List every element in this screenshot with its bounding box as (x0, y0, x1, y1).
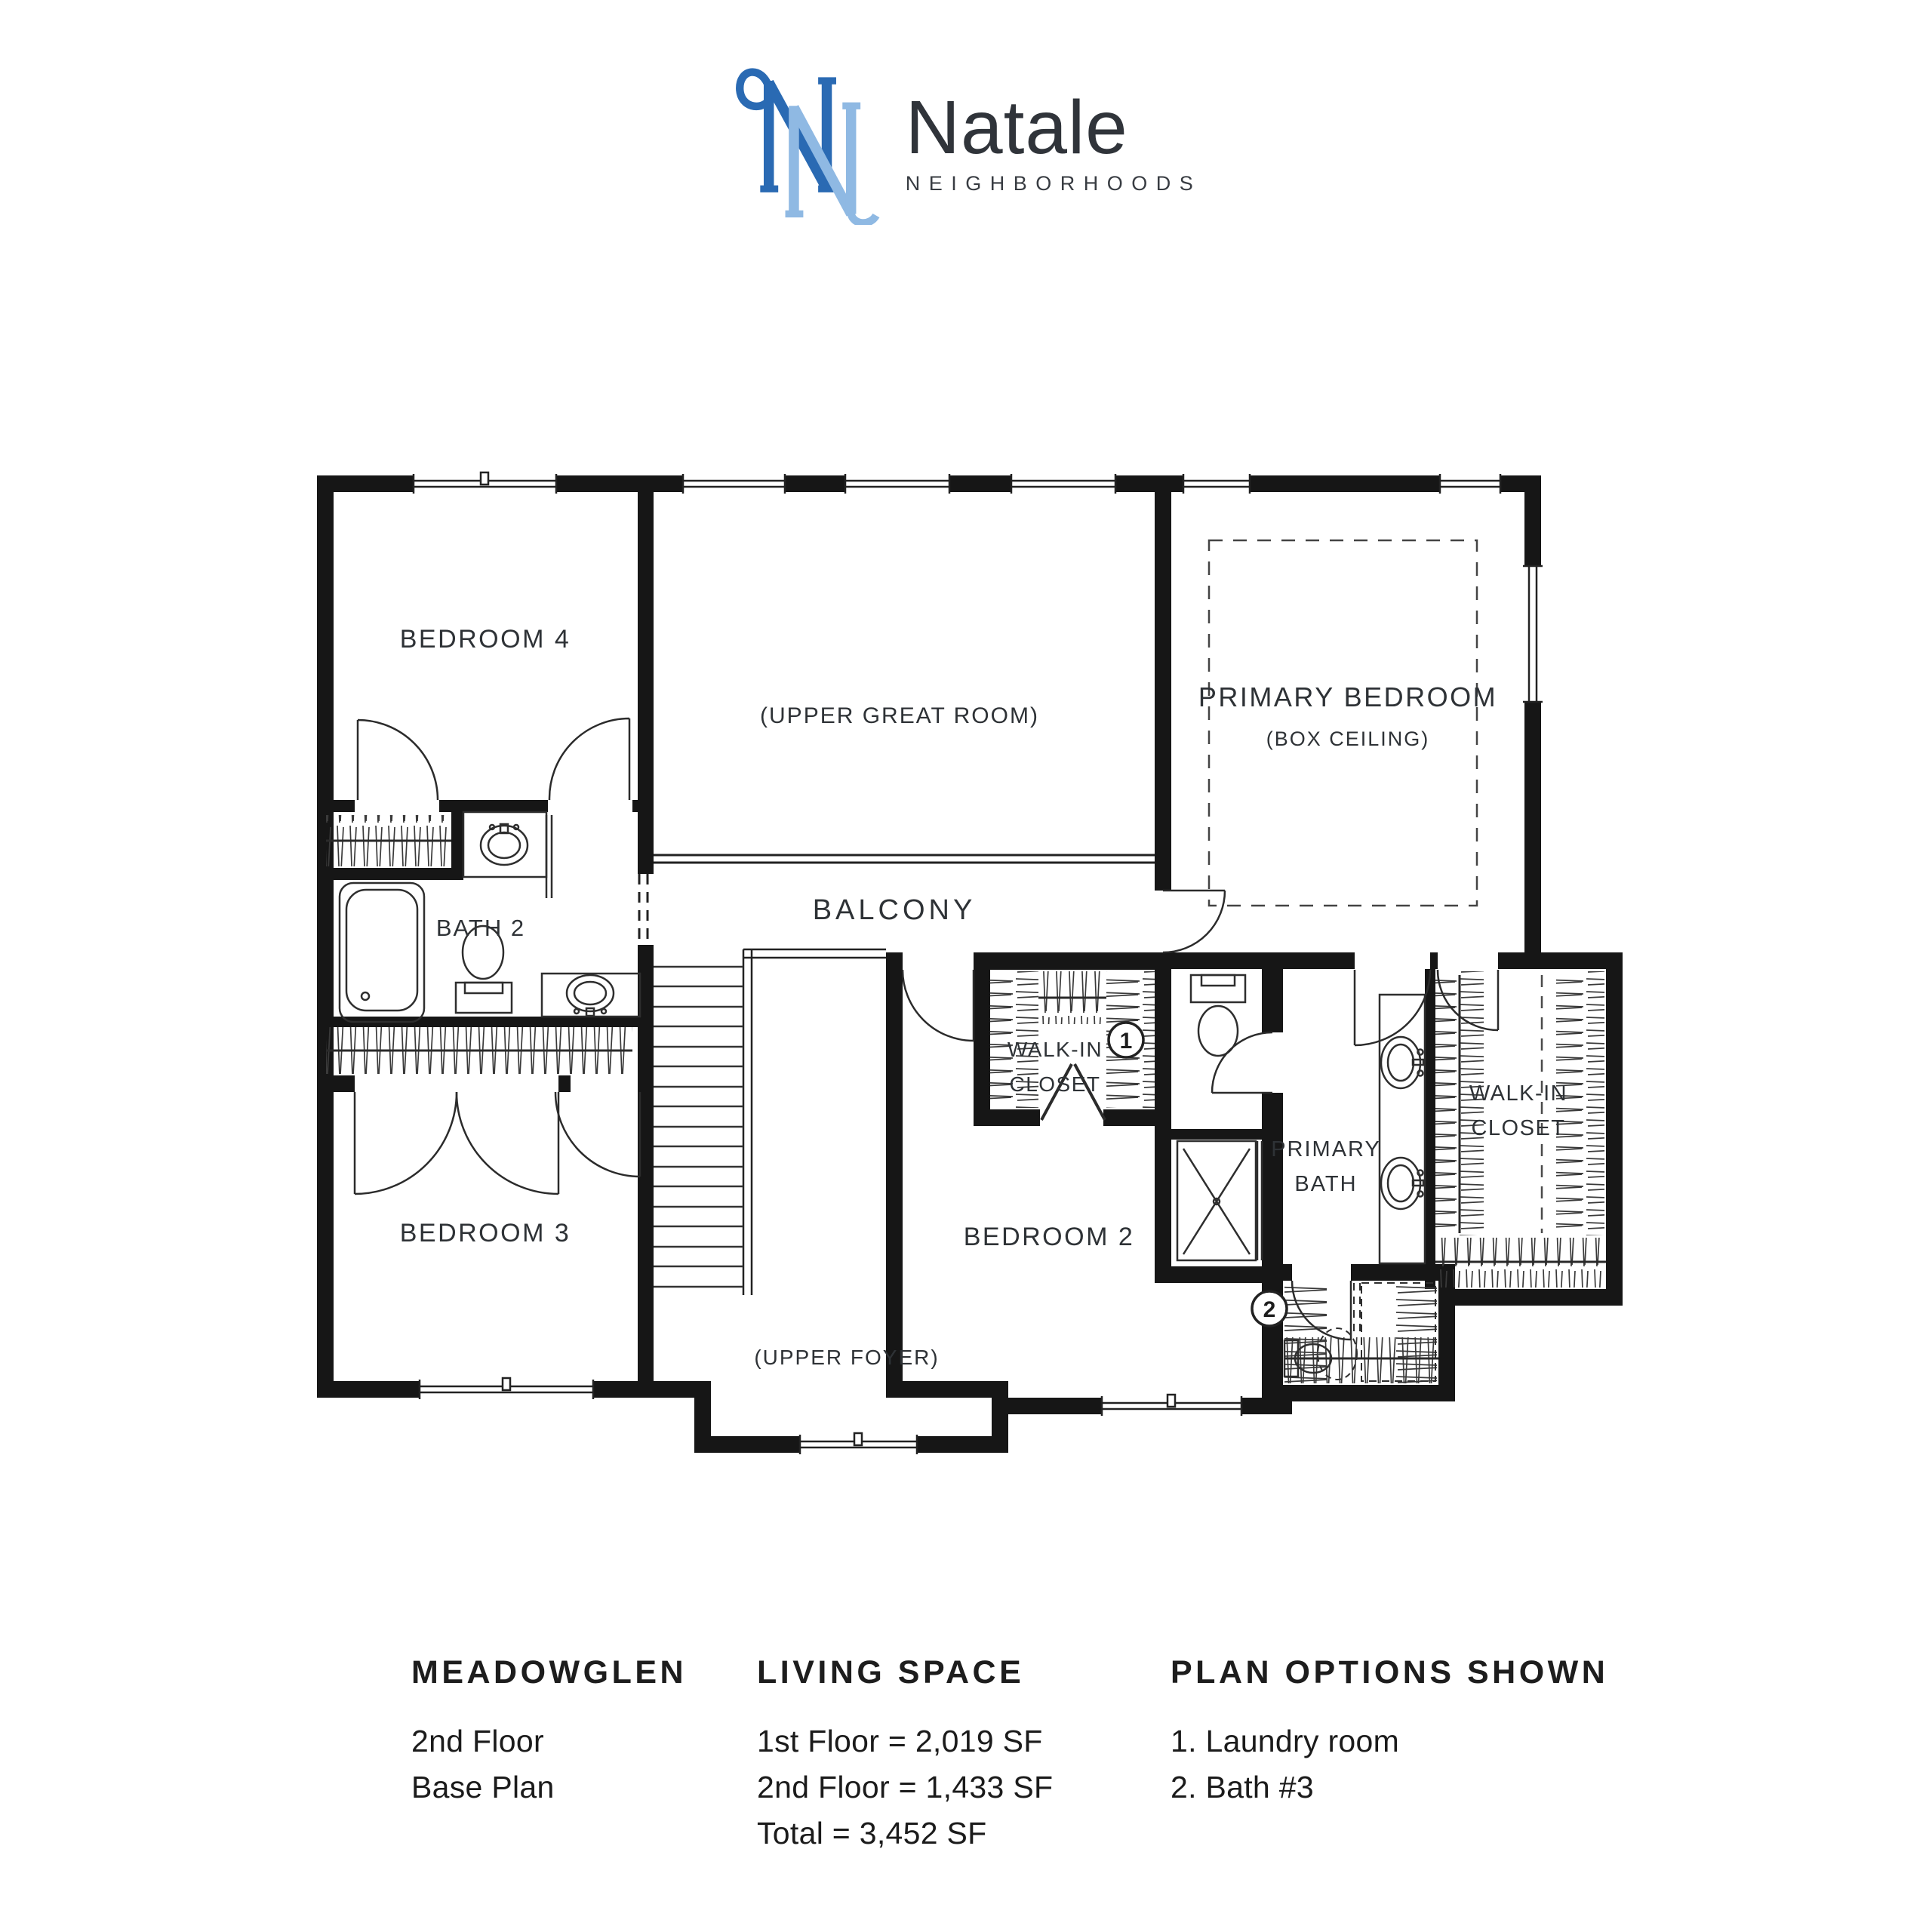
double-vanity-icon (1380, 995, 1425, 1263)
footer-living-space: LIVING SPACE 1st Floor = 2,019 SF 2nd Fl… (757, 1654, 1171, 1857)
label-upper-foyer: (UPPER FOYER) (754, 1346, 939, 1369)
page: Natale NEIGHBORHOODS (0, 0, 1932, 1932)
footer: MEADOWGLEN 2nd Floor Base Plan LIVING SP… (411, 1654, 1638, 1857)
plan-option-1: 1. Laundry room (1171, 1718, 1638, 1764)
label-bedroom2: BEDROOM 2 (964, 1223, 1135, 1251)
plan-option-2: 2. Bath #3 (1171, 1764, 1638, 1810)
floor-plan: BEDROOM 4 (UPPER GREAT ROOM) PRIMARY BED… (0, 0, 1932, 1932)
bathtub-icon (340, 883, 424, 1022)
stairs (654, 967, 743, 1287)
label-bedroom3: BEDROOM 3 (400, 1219, 571, 1247)
label-wic1-line1: WALK-IN (1008, 1038, 1103, 1061)
label-primary-bedroom: PRIMARY BEDROOM (1198, 681, 1497, 712)
label-primary-bath-line2: BATH (1294, 1172, 1357, 1196)
label-primary-bath-line1: PRIMARY (1271, 1137, 1381, 1161)
footer-plan-name: MEADOWGLEN 2nd Floor Base Plan (411, 1654, 757, 1857)
label-bedroom4: BEDROOM 4 (400, 625, 571, 654)
label-bath2: BATH 2 (436, 915, 525, 941)
plan-name-title: MEADOWGLEN (411, 1654, 757, 1691)
plan-variant: Base Plan (411, 1764, 757, 1810)
label-upper-great-room: (UPPER GREAT ROOM) (760, 703, 1039, 728)
box-ceiling-outline (1209, 540, 1477, 906)
label-wic2-line1: WALK-IN (1469, 1081, 1567, 1106)
marker-1: 1 (1120, 1029, 1133, 1054)
plan-floor: 2nd Floor (411, 1718, 757, 1764)
sink-icon (542, 974, 640, 1017)
sink-icon (463, 812, 546, 877)
label-box-ceiling: (BOX CEILING) (1266, 728, 1430, 750)
marker-2: 2 (1263, 1297, 1276, 1322)
footer-plan-options: PLAN OPTIONS SHOWN 1. Laundry room 2. Ba… (1171, 1654, 1638, 1857)
living-space-first-floor: 1st Floor = 2,019 SF (757, 1718, 1171, 1764)
label-balcony: BALCONY (813, 894, 977, 926)
living-space-total: Total = 3,452 SF (757, 1810, 1171, 1857)
label-wic2-line2: CLOSET (1471, 1116, 1565, 1140)
living-space-title: LIVING SPACE (757, 1654, 1171, 1691)
shower-icon (1177, 1141, 1262, 1260)
living-space-second-floor: 2nd Floor = 1,433 SF (757, 1764, 1171, 1810)
plan-options-title: PLAN OPTIONS SHOWN (1171, 1654, 1638, 1691)
label-wic1-line2: CLOSET (1009, 1072, 1100, 1096)
